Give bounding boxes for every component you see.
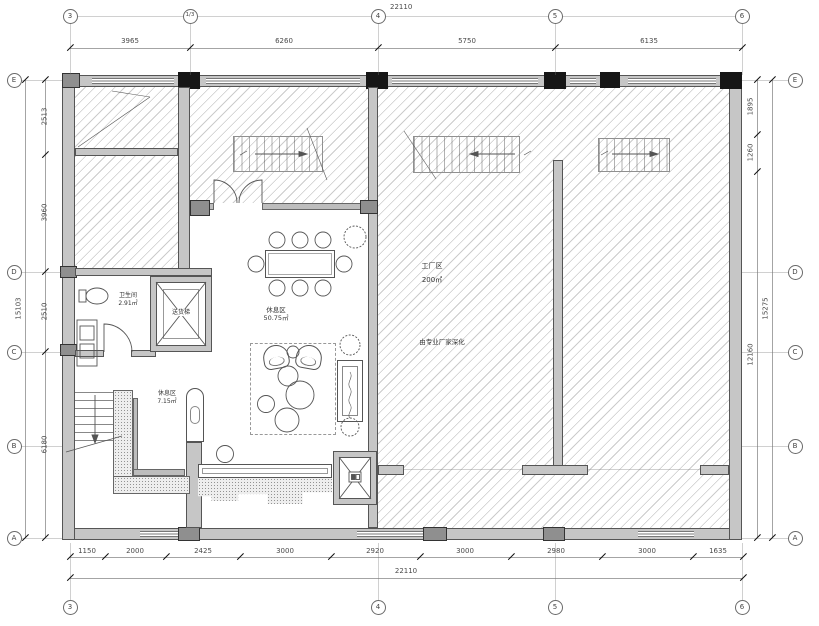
- interior-wall: [75, 350, 104, 357]
- hatch-topleft-room: [75, 87, 178, 276]
- grid-bubble-right-C: C: [788, 345, 803, 360]
- column: [543, 527, 565, 541]
- column: [423, 527, 447, 541]
- column: [178, 527, 200, 541]
- dim-line-right-2: [772, 80, 773, 538]
- ladder-symbol: [598, 138, 670, 172]
- grid-bubble-bottom-4: 4: [371, 600, 386, 615]
- grid-bubble-bottom-5: 5: [548, 600, 563, 615]
- column: [62, 73, 80, 88]
- counter-inner: [202, 468, 328, 474]
- grid-bubble-bottom-3: 3: [63, 600, 78, 615]
- wall-stub: [522, 465, 588, 475]
- tv-cabinet-inner: [342, 366, 358, 416]
- dim-right-seg: 1260: [748, 133, 755, 173]
- interior-wall: [178, 87, 190, 276]
- dim-bottom-seg: 3000: [622, 548, 672, 555]
- room-label-rest: 休息区7.15㎡: [148, 390, 186, 406]
- grid-line: [70, 24, 71, 75]
- grid-bubble-left-E: E: [7, 73, 22, 88]
- dim-bottom-seg: 1150: [62, 548, 112, 555]
- dim-bottom-seg: 3000: [440, 548, 490, 555]
- window: [206, 78, 360, 84]
- room-label-elevator: 送货梯: [158, 309, 204, 317]
- dim-top-total: 22110: [390, 4, 432, 11]
- interior-wall: [75, 268, 212, 276]
- grid-bubble-top-3: 3: [63, 9, 78, 24]
- grid-bubble-top-5: 5: [548, 9, 563, 24]
- exterior-wall-right: [729, 75, 742, 540]
- interior-wall: [553, 160, 563, 470]
- column: [600, 72, 620, 88]
- grid-bubble-left-C: C: [7, 345, 22, 360]
- room-label-factory: 工厂区200㎡: [405, 262, 459, 285]
- window: [638, 531, 694, 537]
- grid-line: [742, 272, 788, 273]
- bench-back: [133, 398, 138, 476]
- dim-bottom-seg: 3000: [260, 548, 310, 555]
- grid-bubble-bottom-6: 6: [735, 600, 750, 615]
- dim-left-seg: 2510: [42, 292, 49, 332]
- grid-bubble-top-4: 4: [371, 9, 386, 24]
- dim-top-seg: 5750: [442, 38, 492, 45]
- dim-left-seg: 2513: [42, 97, 49, 137]
- dim-top-seg: 6135: [624, 38, 674, 45]
- grid-line: [78, 16, 736, 17]
- dim-bottom-seg: 2000: [110, 548, 160, 555]
- column: [190, 200, 210, 216]
- counter-stipple: [198, 478, 332, 504]
- window: [628, 78, 716, 84]
- dim-bottom-seg: 1635: [693, 548, 743, 555]
- grid-bubble-left-B: B: [7, 439, 22, 454]
- room-note-factory: 由专业厂家深化: [398, 338, 486, 346]
- bench-back: [133, 469, 185, 476]
- grid-line: [190, 24, 191, 75]
- stair-treads: [75, 392, 115, 441]
- grid-line: [378, 24, 379, 75]
- grid-line: [742, 538, 788, 539]
- dim-bottom-seg: 2980: [531, 548, 581, 555]
- wall-stub: [378, 465, 404, 475]
- column: [360, 200, 378, 214]
- grid-bubble-right-D: D: [788, 265, 803, 280]
- dim-left-seg: 3960: [42, 193, 49, 233]
- dim-bottom-seg: 2425: [178, 548, 228, 555]
- dim-line-left-2: [25, 80, 26, 538]
- room-label-lounge: 休息区50.75㎡: [248, 306, 304, 323]
- dim-bottom-seg: 2920: [350, 548, 400, 555]
- exterior-wall-left: [62, 75, 75, 540]
- grid-line: [555, 24, 556, 75]
- dim-left-total: 15103: [16, 289, 23, 329]
- ladder-symbol: [233, 136, 323, 172]
- dim-right-total: 15275: [763, 289, 770, 329]
- grid-line: [742, 80, 788, 81]
- bench-l-horizontal: [113, 476, 190, 494]
- room-label-toilet: 卫生间2.91㎡: [104, 292, 152, 308]
- dining-table-inner: [268, 253, 332, 275]
- dim-line-bottom-2: [70, 578, 743, 579]
- capsule-fixture: [190, 406, 200, 424]
- dim-right-seg: 12160: [748, 335, 755, 375]
- dim-bottom-total: 22110: [384, 568, 428, 575]
- column: [720, 72, 742, 89]
- interior-wall: [75, 148, 178, 156]
- grid-line: [742, 446, 788, 447]
- window: [357, 531, 423, 537]
- ladder-symbol: [413, 136, 520, 173]
- window: [570, 78, 596, 84]
- window: [92, 78, 174, 84]
- dim-top-seg: 6260: [259, 38, 309, 45]
- wall-stub: [700, 465, 729, 475]
- dim-tick: [739, 574, 746, 581]
- interior-wall: [262, 203, 368, 210]
- grid-bubble-top-1-3: 1/3: [183, 9, 198, 24]
- grid-line: [742, 24, 743, 75]
- dim-top-seg: 3965: [105, 38, 155, 45]
- grid-bubble-top-6: 6: [735, 9, 750, 24]
- small-shaft-cab: [339, 457, 371, 499]
- dim-line-top: [70, 48, 743, 49]
- grid-bubble-right-E: E: [788, 73, 803, 88]
- floor-plan-sheet: 3 1/3 4 5 6 3 4 5 6 E D C B A E D C B A …: [0, 0, 819, 626]
- dim-left-seg: 6180: [42, 425, 49, 465]
- grid-bubble-right-B: B: [788, 439, 803, 454]
- dim-line-bottom-1: [70, 557, 743, 558]
- window: [392, 78, 538, 84]
- dim-line-right-1: [757, 80, 758, 538]
- grid-bubble-left-A: A: [7, 531, 22, 546]
- grid-bubble-left-D: D: [7, 265, 22, 280]
- dim-right-seg: 1895: [748, 87, 755, 127]
- grid-bubble-right-A: A: [788, 531, 803, 546]
